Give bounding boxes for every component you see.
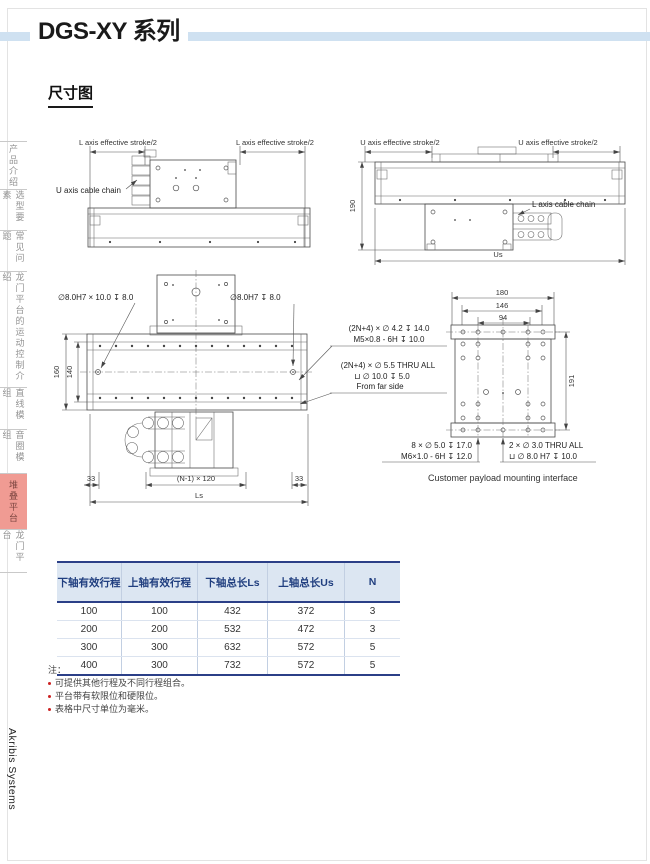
- page-title: DGS-XY 系列: [30, 16, 188, 48]
- table-cell: 300: [122, 639, 198, 656]
- dim-pitch: (N-1) × 120: [177, 474, 215, 483]
- payload-caption: Customer payload mounting interface: [428, 473, 578, 483]
- dim-ls: Ls: [195, 491, 203, 500]
- payload-right-spec-line1: 2 × ∅ 3.0 THRU ALL: [509, 441, 584, 450]
- table-cell: 572: [268, 639, 345, 656]
- spec-table-row: 100 100 432 372 3: [57, 603, 400, 621]
- table-cell: 472: [268, 621, 345, 638]
- table-cell: 532: [198, 621, 268, 638]
- table-cell: 3: [345, 621, 400, 638]
- bullet-icon: [48, 708, 51, 711]
- col-header: N: [345, 563, 400, 601]
- thru-holes-spec-line2: ⊔ ∅ 10.0 ↧ 5.0: [354, 372, 410, 381]
- table-cell: 632: [198, 639, 268, 656]
- u-stroke-label-left: U axis effective stroke/2: [360, 138, 439, 147]
- col-header: 上轴总长Us: [268, 563, 345, 601]
- dim-180: 180: [496, 288, 509, 297]
- table-cell: 3: [345, 603, 400, 620]
- bullet-icon: [48, 682, 51, 685]
- l-cable-chain-label: L axis cable chain: [532, 200, 595, 209]
- pin-hole-label-right: ∅8.0H7 ↧ 8.0: [230, 293, 281, 302]
- section-heading: 尺寸图: [48, 82, 93, 108]
- note-item: 平台带有软限位和硬限位。: [48, 690, 190, 703]
- note-item: 表格中尺寸单位为毫米。: [48, 703, 190, 716]
- dim-94: 94: [499, 313, 507, 322]
- l-stroke-label-left: L axis effective stroke/2: [79, 138, 157, 147]
- dim-191: 191: [567, 375, 576, 388]
- tapped-holes-spec-line2: M5×0.8 - 6H ↧ 10.0: [354, 335, 426, 344]
- note-item: 可提供其他行程及不同行程组合。: [48, 677, 190, 690]
- payload-right-spec-line2: ⊔ ∅ 8.0 H7 ↧ 10.0: [509, 452, 577, 461]
- pin-hole-label-left: ∅8.0H7 × 10.0 ↧ 8.0: [58, 293, 134, 302]
- notes-block: 注： 可提供其他行程及不同行程组合。 平台带有软限位和硬限位。 表格中尺寸单位为…: [48, 664, 190, 716]
- payload-left-spec-line2: M6×1.0 - 6H ↧ 12.0: [401, 452, 473, 461]
- u-stroke-label-right: U axis effective stroke/2: [518, 138, 597, 147]
- dim-140: 140: [65, 366, 74, 379]
- bullet-icon: [48, 695, 51, 698]
- spec-table-row: 200 200 532 472 3: [57, 621, 400, 639]
- dim-33-right: 33: [295, 474, 303, 483]
- u-cable-chain-label: U axis cable chain: [56, 186, 121, 195]
- table-cell: 200: [57, 621, 122, 638]
- col-header: 下轴有效行程: [57, 563, 122, 601]
- tapped-holes-spec-line1: (2N+4) × ∅ 4.2 ↧ 14.0: [349, 324, 430, 333]
- payload-left-spec-line1: 8 × ∅ 5.0 ↧ 17.0: [411, 441, 472, 450]
- col-header: 下轴总长Ls: [198, 563, 268, 601]
- note-text: 表格中尺寸单位为毫米。: [55, 703, 154, 716]
- thru-holes-spec-line3: From far side: [356, 382, 404, 391]
- table-cell: 100: [57, 603, 122, 620]
- catalog-page: DGS-XY 系列 尺寸图 产品介绍 选型要素 常见问题 龙门平台的运动控制介绍…: [0, 0, 650, 864]
- table-cell: 372: [268, 603, 345, 620]
- dimension-drawings: L axis effective stroke/2 L axis effecti…: [0, 120, 650, 540]
- payload-plate-linework: [382, 292, 596, 462]
- spec-table-row: 300 300 632 572 5: [57, 639, 400, 657]
- dim-us: Us: [493, 250, 502, 259]
- table-cell: 200: [122, 621, 198, 638]
- dim-160: 160: [52, 366, 61, 379]
- thru-holes-spec-line1: (2N+4) × ∅ 5.5 THRU ALL: [341, 361, 436, 370]
- dim-33-left: 33: [87, 474, 95, 483]
- l-stroke-label-right: L axis effective stroke/2: [236, 138, 314, 147]
- notes-title: 注：: [48, 664, 190, 677]
- brand-vertical-text: Akribis Systems: [6, 728, 18, 810]
- table-cell: 432: [198, 603, 268, 620]
- dim-190: 190: [348, 200, 357, 213]
- table-cell: 732: [198, 657, 268, 674]
- table-cell: 5: [345, 639, 400, 656]
- note-text: 可提供其他行程及不同行程组合。: [55, 677, 190, 690]
- note-text: 平台带有软限位和硬限位。: [55, 690, 163, 703]
- side-view-l-linework: [88, 146, 310, 247]
- dim-146: 146: [496, 301, 509, 310]
- spec-table-header-row: 下轴有效行程 上轴有效行程 下轴总长Ls 上轴总长Us N: [57, 561, 400, 603]
- table-cell: 572: [268, 657, 345, 674]
- col-header: 上轴有效行程: [122, 563, 198, 601]
- table-cell: 300: [57, 639, 122, 656]
- spec-table: 下轴有效行程 上轴有效行程 下轴总长Ls 上轴总长Us N 100 100 43…: [57, 561, 400, 676]
- table-cell: 5: [345, 657, 400, 674]
- table-cell: 100: [122, 603, 198, 620]
